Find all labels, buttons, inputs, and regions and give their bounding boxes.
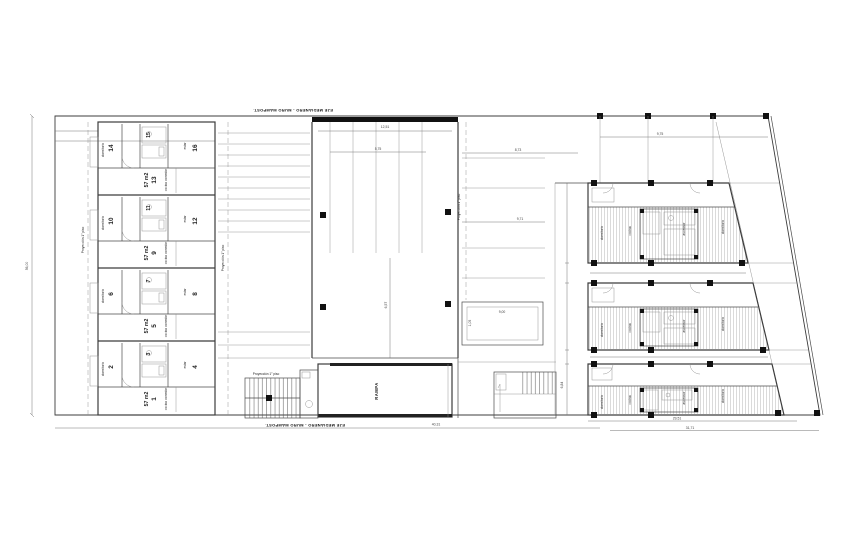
- room-label: estar: [183, 142, 187, 150]
- room-number: 12: [192, 217, 199, 225]
- room-number: 16: [192, 144, 199, 152]
- apartment-row-3: dormitorio cocina ascensor dormitorio: [588, 361, 784, 418]
- dim-top-right: 9,75: [657, 132, 664, 136]
- stair-right: [458, 358, 556, 418]
- garage: 12,51 5,75 6,57: [312, 117, 458, 358]
- ramp-label: RAMPA: [374, 382, 379, 400]
- room-label: dormitorio: [101, 216, 105, 230]
- room-number: 8: [192, 292, 199, 296]
- dim-bottom-right-upper: 29,51: [673, 417, 682, 421]
- dim-right-strip: 6,84: [560, 382, 564, 389]
- ramp: RAMPA: [318, 363, 452, 417]
- room-label: dormitorio: [721, 317, 725, 331]
- apartment-row-2: dormitorio cocina ascensor dormitorio: [588, 280, 769, 353]
- room-number: 6: [108, 292, 115, 296]
- unit-number: 9: [151, 251, 158, 255]
- room-number: 14: [108, 144, 115, 152]
- parking-strip-mid: Proyección 1° piso: [457, 122, 545, 300]
- room-number: 7: [146, 279, 152, 282]
- room-number: 11: [146, 205, 152, 211]
- room-label: cocina: [628, 395, 632, 404]
- dim-site-height: 56,00: [25, 262, 29, 271]
- proyeccion-label-parking: Proyección 1° piso: [221, 245, 225, 272]
- room-label: dormitorio: [101, 289, 105, 303]
- room-label: cocina: [628, 323, 632, 332]
- dim-patio-left: 1,05: [468, 320, 472, 327]
- eje-mediandero-bottom-label: EJE MEDIANERO - MURO MAMPOST.: [265, 423, 345, 428]
- apartment-module-1: dormitorio 14 15 estar 16 57 m2 13 cocin…: [90, 124, 215, 193]
- room-label: dormitorio: [101, 143, 105, 157]
- drawing-canvas: EJE MEDIANERO - MURO MAMPOST. EJE MEDIAN…: [0, 0, 857, 537]
- unit-area: 57 m2: [144, 392, 150, 407]
- dim-bottom-right-lower: 31,71: [686, 426, 695, 430]
- room-label: cocina: [628, 226, 632, 235]
- room-label: cocina comedor: [164, 387, 168, 410]
- apartment-module-3: dormitorio 6 7 estar 8 57 m2 5 cocina co…: [90, 270, 215, 339]
- room-label: ascensor: [682, 319, 686, 333]
- room-label: dormitorio: [721, 220, 725, 234]
- dim-garage-top: 12,51: [381, 125, 390, 129]
- unit-number: 1: [151, 397, 158, 401]
- dim-garage-depth: 6,57: [384, 302, 388, 309]
- unit-area: 57 m2: [144, 319, 150, 334]
- unit-number: 5: [151, 324, 158, 328]
- apartment-module-2: dormitorio 10 11 estar 12 57 m2 9 cocina…: [90, 197, 215, 266]
- room-label: ascensor: [682, 391, 686, 405]
- proyeccion-label-mid: Proyección 1° piso: [457, 194, 461, 221]
- room-label: estar: [183, 361, 187, 369]
- proyeccion-label-left: Proyección 1° piso: [81, 227, 85, 254]
- apartment-module-4: dormitorio 2 3 estar 4 57 m2 1 cocina co…: [90, 343, 215, 412]
- room-label: cocina comedor: [164, 314, 168, 337]
- room-number: 3: [146, 352, 152, 355]
- room-number: 10: [108, 217, 115, 225]
- room-number: 2: [108, 365, 115, 369]
- apartment-row-1: dormitorio cocina ascensor dormitorio: [588, 180, 748, 266]
- room-label: estar: [183, 288, 187, 296]
- right-apartment-rows: dormitorio cocina ascensor dormitorio: [555, 180, 811, 418]
- proyeccion-label-stair: Proyección 1° piso: [253, 372, 280, 376]
- dim-bottom-left: 40,31: [432, 423, 441, 427]
- patio: 9,00 1,05: [462, 302, 543, 345]
- floor-plan-drawing: EJE MEDIANERO - MURO MAMPOST. EJE MEDIAN…: [0, 0, 857, 537]
- room-label: dormitorio: [101, 362, 105, 376]
- dim-parking-mid: 9,71: [517, 217, 524, 221]
- dim-garage-inner: 5,75: [375, 147, 382, 151]
- unit-area: 57 m2: [144, 246, 150, 261]
- room-label: dormitorio: [600, 226, 604, 240]
- site-boundary: [55, 113, 823, 416]
- left-yard: Proyección 1° piso: [81, 122, 88, 415]
- room-label: dormitorio: [600, 395, 604, 409]
- eje-mediandero-top-label: EJE MEDIANERO - MURO MAMPOST.: [253, 108, 333, 113]
- room-label: cocina comedor: [164, 241, 168, 264]
- room-label: ascensor: [682, 222, 686, 236]
- room-label: estar: [183, 215, 187, 223]
- unit-area: 57 m2: [144, 173, 150, 188]
- room-label: dormitorio: [600, 323, 604, 337]
- unit-number: 13: [151, 176, 158, 184]
- dim-mid-gap: 8,73: [515, 148, 522, 152]
- dim-patio-width: 9,00: [499, 310, 506, 314]
- left-apartment-block: dormitorio 14 15 estar 16 57 m2 13 cocin…: [90, 122, 215, 415]
- stair-left: Proyección 1° piso: [245, 370, 318, 418]
- room-number: 15: [146, 132, 152, 138]
- room-label: cocina comedor: [164, 168, 168, 191]
- room-number: 4: [192, 365, 199, 369]
- room-label: dormitorio: [721, 389, 725, 403]
